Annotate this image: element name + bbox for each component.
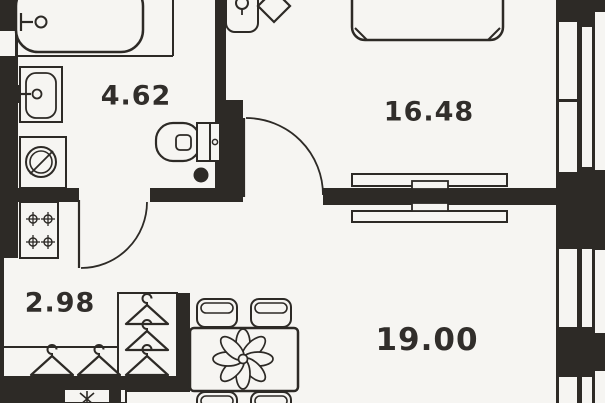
chair-icon: [197, 392, 237, 403]
window-icon: [595, 371, 605, 403]
bathtub-icon: [16, 0, 143, 52]
door-frame: [120, 389, 126, 403]
living-room-furniture: [190, 203, 507, 403]
bathroom-door-swing: [81, 202, 147, 268]
entry-door-icon: [258, 0, 290, 22]
flower-centerpiece-icon: [213, 329, 273, 389]
bedroom-door-jamb: [226, 100, 243, 202]
stove-icon: [20, 202, 58, 258]
chair-icon: [197, 299, 237, 327]
chair-icon: [251, 299, 291, 327]
toilet-icon: [156, 123, 200, 161]
window-icon: [559, 102, 577, 172]
toilet-tank: [197, 123, 210, 161]
window-icon: [582, 377, 592, 403]
floor-plan: 4.62 16.48 2.98 19.00: [0, 0, 605, 403]
chair-icon: [251, 392, 291, 403]
window-icon: [582, 249, 592, 327]
bedroom-furniture: [352, 0, 507, 189]
window-icon: [582, 27, 592, 167]
bathroom-south-wall-left: [0, 188, 79, 202]
bedroom-door-swing: [246, 118, 323, 195]
tv-console-icon: [352, 211, 507, 222]
wall-stub: [110, 389, 120, 403]
room-label-hallway: 2.98: [25, 288, 96, 319]
window-icon: [559, 22, 577, 99]
bathroom-east-wall: [215, 0, 226, 202]
left-wall-niche: [0, 31, 15, 56]
window-icon: [559, 249, 577, 327]
window-icon: [595, 12, 605, 170]
room-label-bedroom: 16.48: [384, 97, 474, 128]
toilet-valve-panel: [210, 123, 220, 161]
walls: [0, 0, 605, 403]
floor-drain-icon: [194, 168, 209, 183]
floor-plan-drawing: [0, 0, 605, 403]
kitchen-sink-icon: [226, 0, 258, 32]
bed-icon: [352, 0, 503, 40]
bottom-wall-corner: [0, 392, 64, 403]
tv-icon: [412, 203, 448, 211]
window-icon: [595, 250, 605, 333]
room-label-living-room: 19.00: [375, 322, 478, 358]
wardrobe-icon: [3, 347, 118, 377]
tv-icon: [412, 181, 448, 189]
window-icon: [559, 377, 577, 403]
room-label-bathroom: 4.62: [101, 81, 172, 112]
wardrobe-east-wall: [177, 293, 190, 377]
